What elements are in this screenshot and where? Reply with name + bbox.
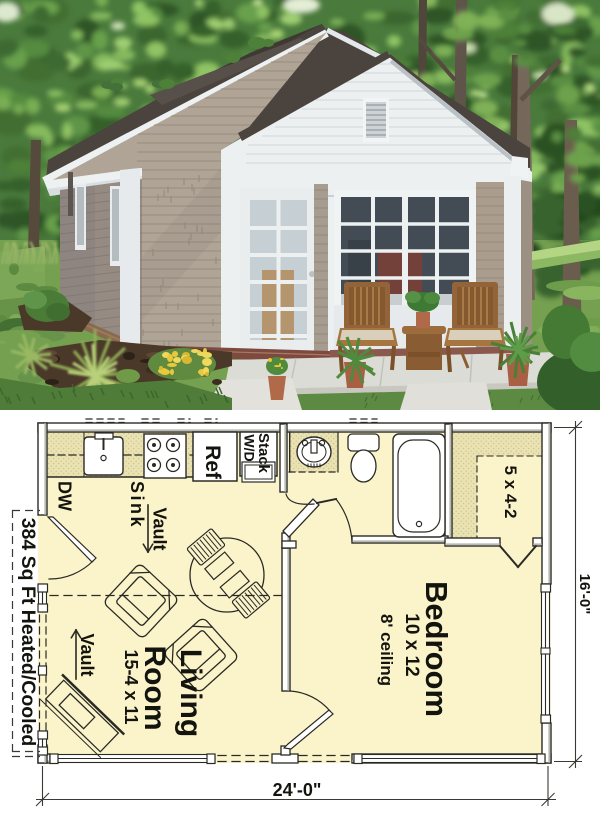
svg-text:Vault: Vault bbox=[150, 507, 170, 550]
svg-text:10 x 12: 10 x 12 bbox=[401, 613, 422, 676]
svg-text:16'-0": 16'-0" bbox=[576, 574, 593, 615]
svg-text:384 Sq Ft Heated/Cooled: 384 Sq Ft Heated/Cooled bbox=[17, 518, 39, 747]
svg-text:Room: Room bbox=[138, 646, 171, 731]
svg-text:24'-0": 24'-0" bbox=[273, 780, 322, 800]
svg-text:Ref: Ref bbox=[201, 445, 224, 480]
svg-text:Living: Living bbox=[174, 649, 207, 737]
svg-text:8' ceiling: 8' ceiling bbox=[377, 614, 396, 686]
svg-text:5 x 4-2: 5 x 4-2 bbox=[501, 466, 520, 519]
svg-text:15-4 x 11: 15-4 x 11 bbox=[121, 649, 141, 724]
svg-text:Bedroom: Bedroom bbox=[419, 581, 454, 717]
svg-text:Vault: Vault bbox=[77, 633, 97, 676]
svg-text:DW: DW bbox=[55, 481, 75, 511]
svg-text:Sink: Sink bbox=[127, 481, 147, 529]
svg-text:W/D: W/D bbox=[242, 434, 258, 461]
